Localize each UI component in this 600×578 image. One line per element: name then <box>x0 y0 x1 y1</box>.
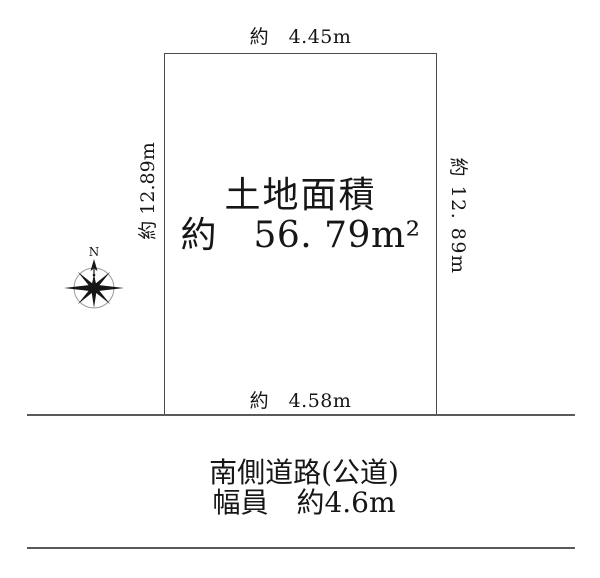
dimension-label-top: 約 4.45m <box>164 22 437 49</box>
road-label-line1: 南側道路(公道) <box>0 458 600 488</box>
road-label-line2: 幅員 約4.6m <box>0 488 600 518</box>
land-area-title: 土地面積 <box>164 176 437 216</box>
land-area-block: 土地面積 約 56. 79m² <box>164 176 437 256</box>
road-boundary-line-upper <box>27 414 575 416</box>
road-boundary-line-lower <box>27 547 575 549</box>
dimension-label-left: 約 12.89m <box>135 91 161 291</box>
compass-rose-icon: N <box>53 243 135 325</box>
site-plan-diagram: 約 4.45m 約 4.58m 約 12.89m 約 12. 89m 土地面積 … <box>0 0 600 578</box>
dimension-label-right: 約 12. 89m <box>445 116 471 316</box>
dimension-label-bottom: 約 4.58m <box>164 386 437 413</box>
road-label: 南側道路(公道) 幅員 約4.6m <box>0 458 600 518</box>
compass-north-label: N <box>89 245 100 259</box>
land-area-value: 約 56. 79m² <box>164 216 437 256</box>
